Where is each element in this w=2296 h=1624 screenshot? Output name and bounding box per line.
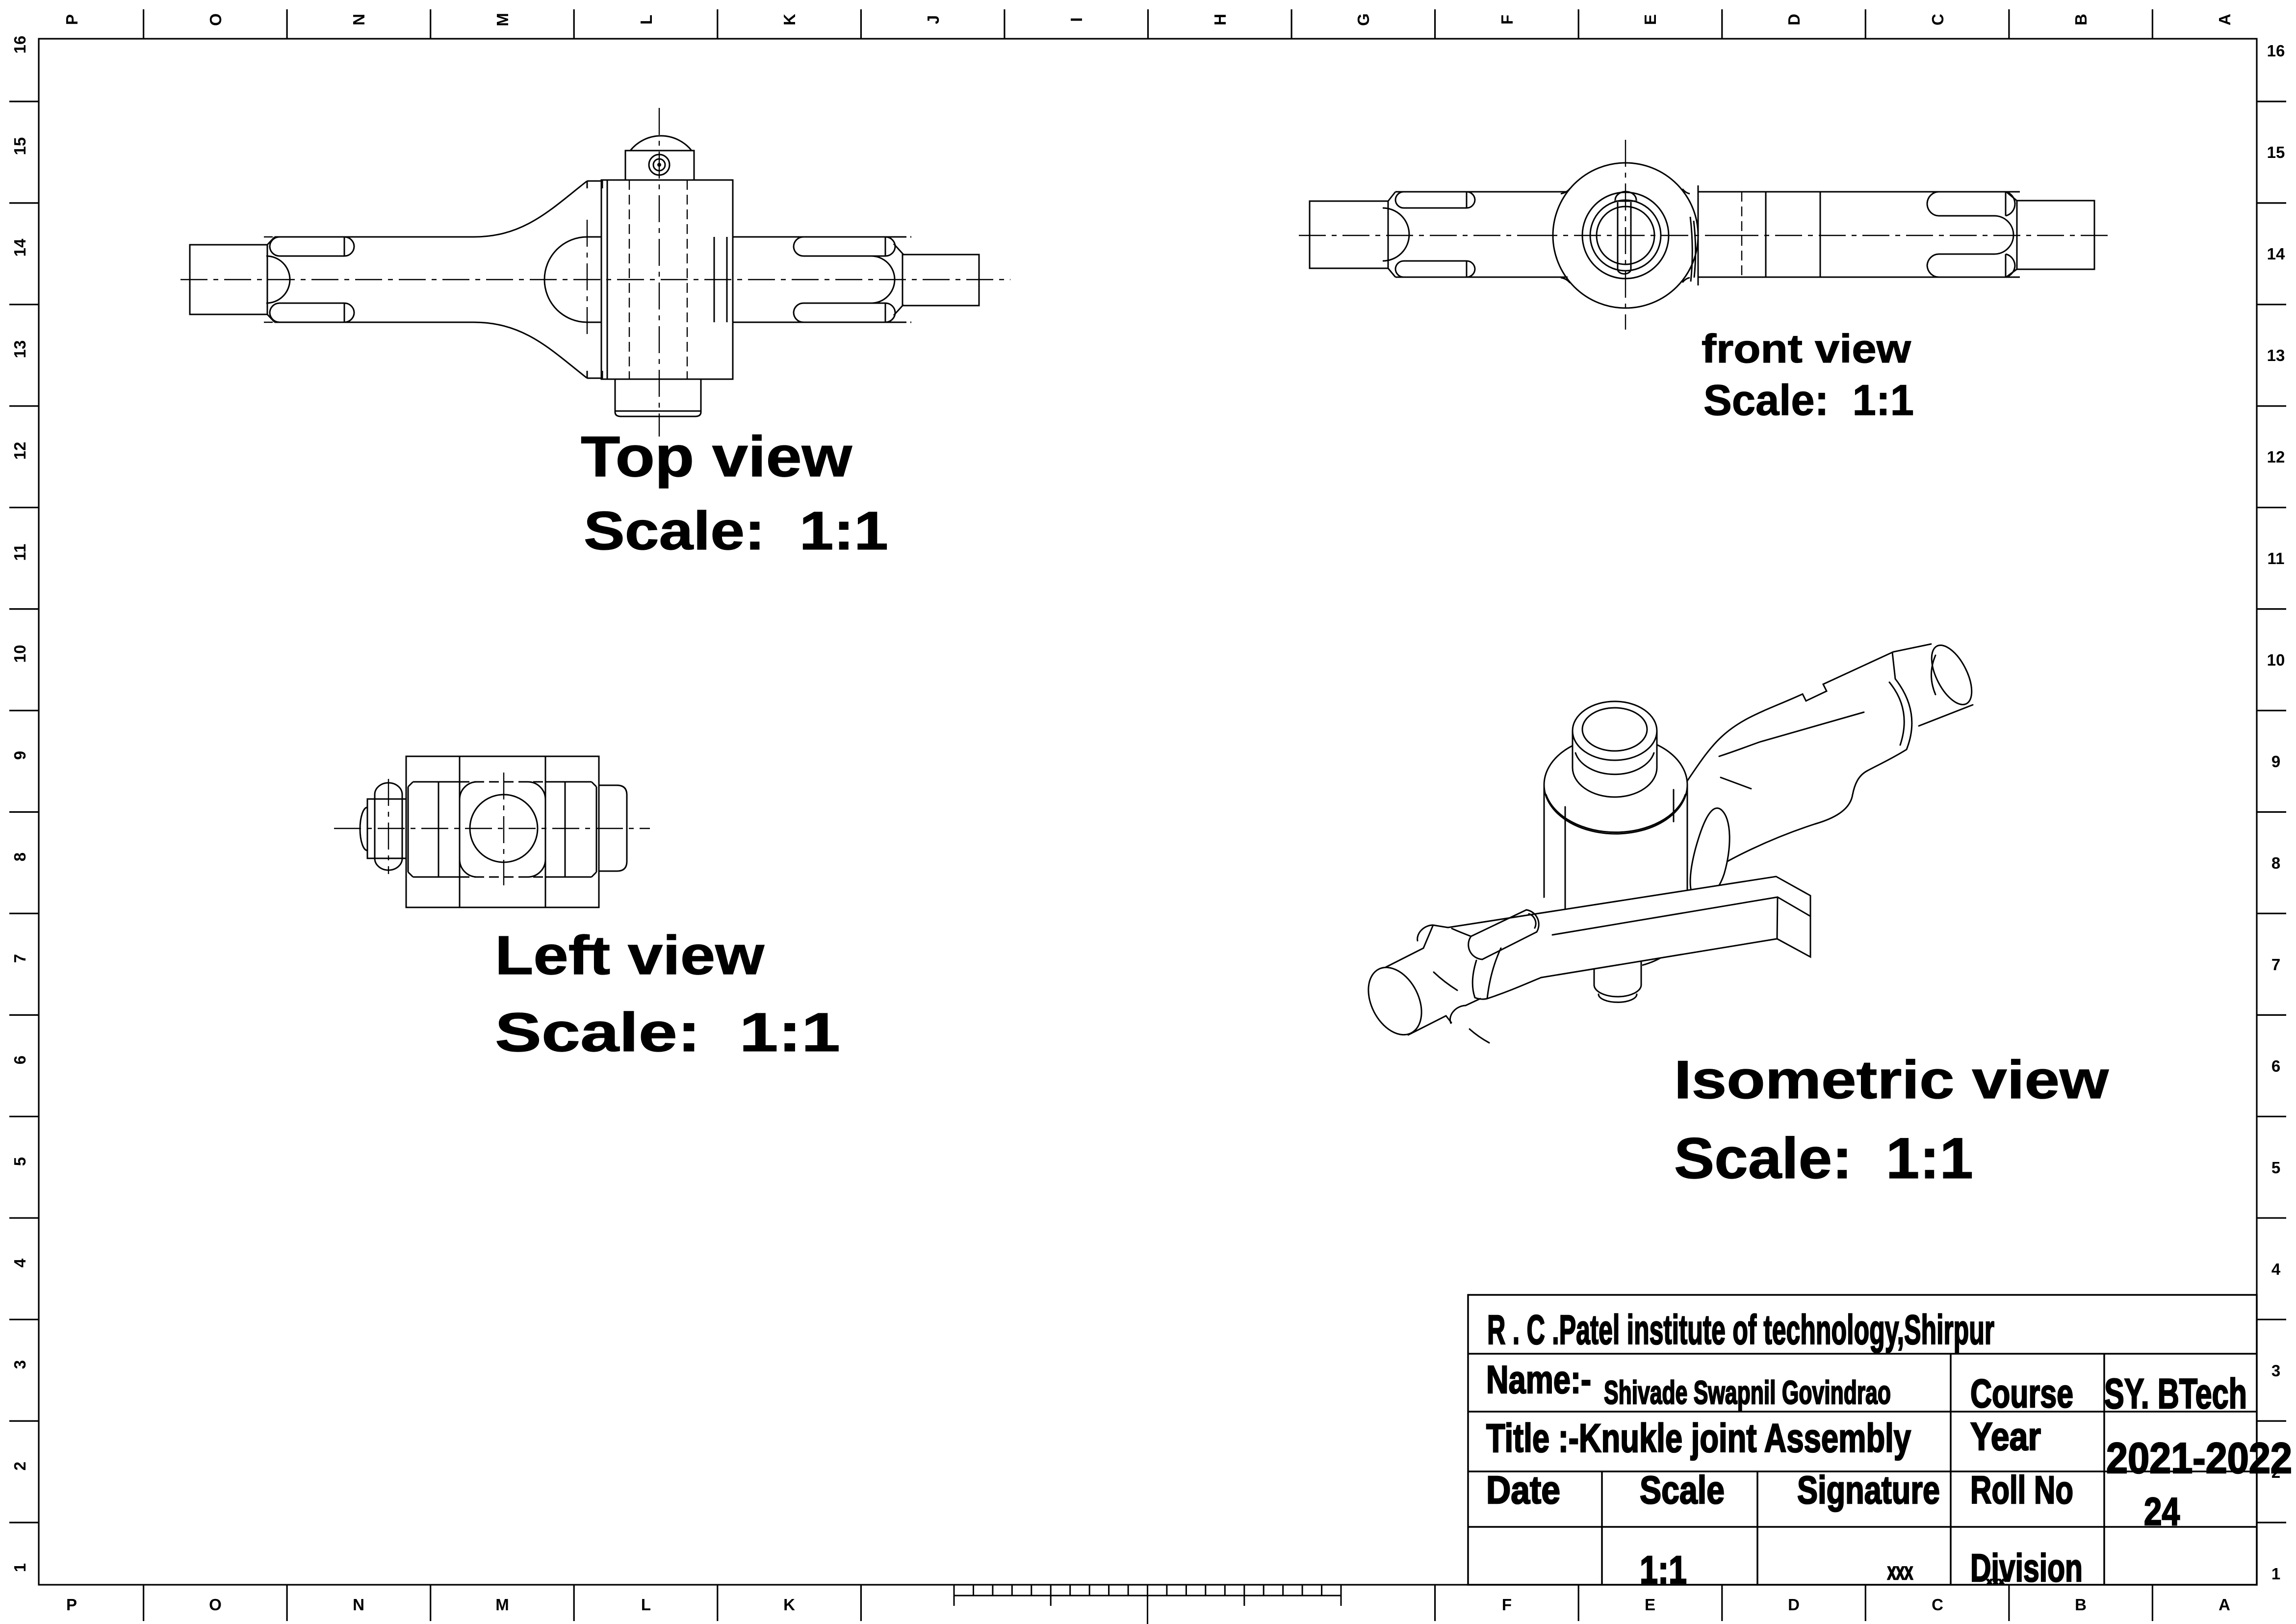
svg-text:9: 9 (2271, 752, 2280, 771)
svg-text:1: 1 (2271, 1565, 2280, 1583)
svg-text:Date: Date (1486, 1468, 1560, 1512)
svg-text:Scale: Scale (1640, 1468, 1725, 1512)
svg-text:front view: front view (1702, 327, 1911, 371)
svg-text:P: P (66, 1596, 77, 1614)
svg-text:K: K (783, 1596, 795, 1614)
svg-text:3: 3 (2271, 1362, 2280, 1380)
svg-text:9: 9 (11, 751, 29, 760)
svg-text:14: 14 (2267, 245, 2285, 263)
svg-text:E: E (1641, 14, 1659, 25)
svg-text:E: E (1645, 1596, 1655, 1614)
svg-text:4: 4 (11, 1258, 29, 1267)
svg-text:A: A (2216, 14, 2234, 26)
svg-text:xxx: xxx (1986, 1576, 2005, 1587)
svg-text:4: 4 (2271, 1260, 2281, 1278)
svg-text:N: N (350, 14, 368, 26)
svg-text:Name:-: Name:- (1486, 1358, 1591, 1401)
svg-text:16: 16 (11, 36, 29, 54)
svg-text:8: 8 (2271, 854, 2280, 872)
svg-text:12: 12 (2267, 448, 2285, 466)
svg-text:10: 10 (11, 645, 29, 663)
svg-text:Title :-Knukle joint Assembly: Title :-Knukle joint Assembly (1486, 1416, 1911, 1461)
svg-text:13: 13 (2267, 346, 2285, 364)
svg-text:N: N (353, 1596, 364, 1614)
svg-text:11: 11 (2268, 549, 2285, 567)
svg-text:1: 1 (11, 1563, 29, 1572)
svg-text:3: 3 (11, 1360, 29, 1369)
svg-text:O: O (206, 13, 225, 26)
svg-text:R . C .Patel institute of tech: R . C .Patel institute of technology,Shi… (1487, 1307, 1994, 1353)
svg-text:J: J (924, 15, 942, 24)
svg-text:16: 16 (2267, 42, 2285, 60)
svg-text:Scale: 1:1: Scale: 1:1 (1703, 376, 1914, 424)
svg-text:15: 15 (2267, 143, 2285, 161)
svg-text:SY. BTech: SY. BTech (2104, 1370, 2247, 1418)
svg-text:M: M (493, 13, 512, 26)
svg-text:L: L (641, 1596, 651, 1614)
svg-text:12: 12 (11, 442, 29, 460)
svg-text:10: 10 (2267, 651, 2285, 669)
svg-text:7: 7 (2271, 955, 2280, 974)
svg-text:6: 6 (2271, 1057, 2280, 1075)
svg-text:Left view: Left view (495, 925, 765, 986)
svg-text:F: F (1502, 1596, 1512, 1614)
svg-text:K: K (780, 14, 799, 26)
svg-text:B: B (2072, 14, 2090, 26)
svg-text:Scale: 1:1: Scale: 1:1 (584, 501, 888, 561)
svg-text:Course: Course (1970, 1371, 2073, 1416)
svg-text:D: D (1788, 1596, 1800, 1614)
svg-text:D: D (1785, 14, 1803, 26)
svg-text:5: 5 (11, 1157, 29, 1166)
svg-text:H: H (1211, 14, 1229, 26)
svg-text:14: 14 (11, 238, 29, 257)
svg-text:Shivade Swapnil Govindrao: Shivade Swapnil Govindrao (1604, 1374, 1891, 1411)
svg-text:Year: Year (1970, 1415, 2041, 1458)
svg-text:O: O (209, 1596, 222, 1614)
svg-text:I: I (1067, 17, 1085, 22)
svg-text:G: G (1354, 13, 1372, 26)
svg-text:A: A (2219, 1596, 2230, 1614)
svg-text:6: 6 (11, 1056, 29, 1064)
svg-text:11: 11 (11, 544, 29, 561)
svg-text:Scale: 1:1: Scale: 1:1 (1674, 1126, 1973, 1191)
svg-text:Roll No: Roll No (1970, 1468, 2073, 1512)
svg-text:Top view: Top view (581, 424, 852, 489)
svg-text:13: 13 (11, 340, 29, 359)
svg-text:2021-2022: 2021-2022 (2106, 1434, 2292, 1482)
svg-text:Scale: 1:1: Scale: 1:1 (495, 1002, 840, 1063)
svg-text:Signature: Signature (1797, 1468, 1940, 1512)
svg-text:8: 8 (11, 852, 29, 861)
svg-text:P: P (63, 14, 81, 25)
svg-text:7: 7 (11, 954, 29, 963)
svg-text:L: L (637, 15, 655, 25)
svg-text:24: 24 (2144, 1490, 2180, 1533)
svg-text:1:1: 1:1 (1640, 1548, 1687, 1592)
svg-text:15: 15 (11, 137, 29, 155)
svg-text:M: M (495, 1596, 509, 1614)
svg-text:2: 2 (11, 1462, 29, 1470)
svg-text:B: B (2075, 1596, 2087, 1614)
svg-text:5: 5 (2271, 1159, 2280, 1177)
svg-text:XXX: XXX (1887, 1563, 1913, 1583)
svg-text:Isometric view: Isometric view (1674, 1050, 2109, 1110)
svg-text:C: C (1932, 1596, 1943, 1614)
svg-text:F: F (1498, 15, 1516, 25)
svg-text:C: C (1929, 14, 1947, 26)
